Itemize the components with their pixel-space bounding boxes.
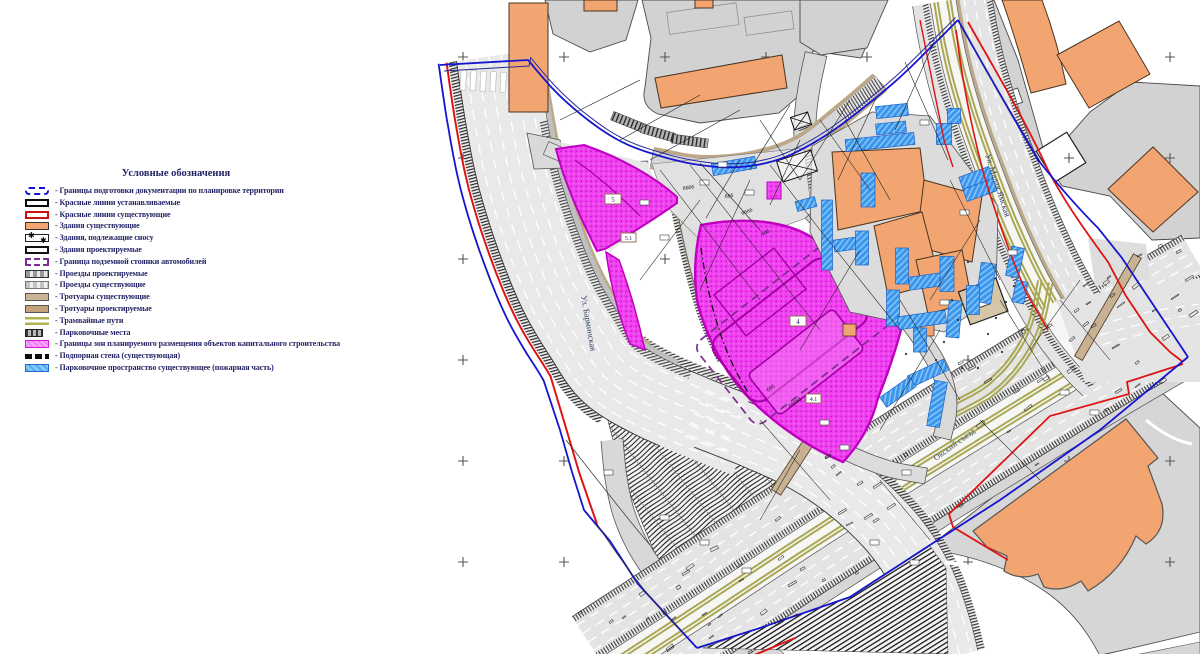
svg-text:5.1: 5.1 (625, 236, 633, 242)
svg-text:4.1: 4.1 (810, 397, 818, 403)
svg-text:4: 4 (796, 318, 800, 326)
svg-text:5: 5 (611, 196, 615, 204)
